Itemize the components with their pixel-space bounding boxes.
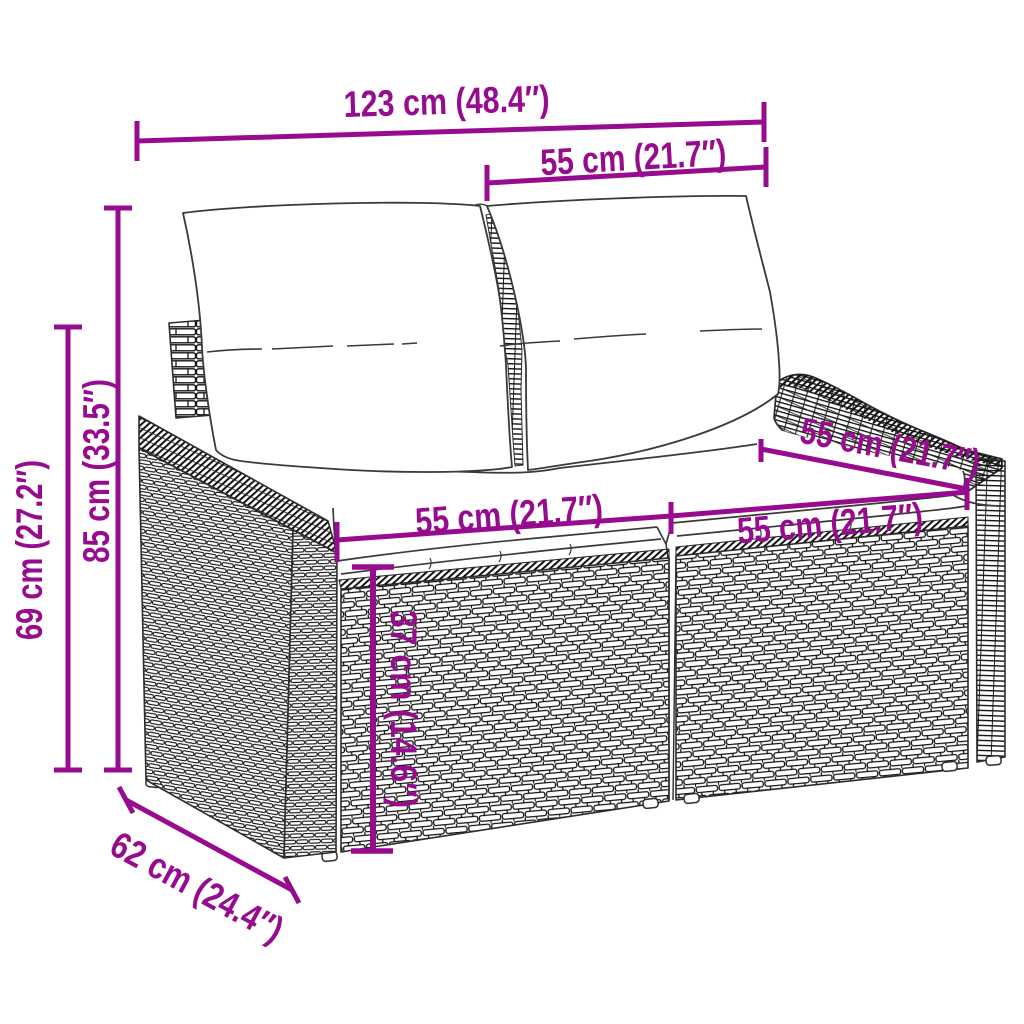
svg-text:55 cm (21.7″): 55 cm (21.7″): [539, 132, 727, 183]
svg-text:85 cm (33.5″): 85 cm (33.5″): [76, 379, 117, 563]
svg-text:123 cm (48.4″): 123 cm (48.4″): [343, 78, 550, 125]
svg-text:69 cm (27.2″): 69 cm (27.2″): [9, 460, 50, 640]
svg-text:37 cm (14.6″): 37 cm (14.6″): [383, 610, 424, 808]
